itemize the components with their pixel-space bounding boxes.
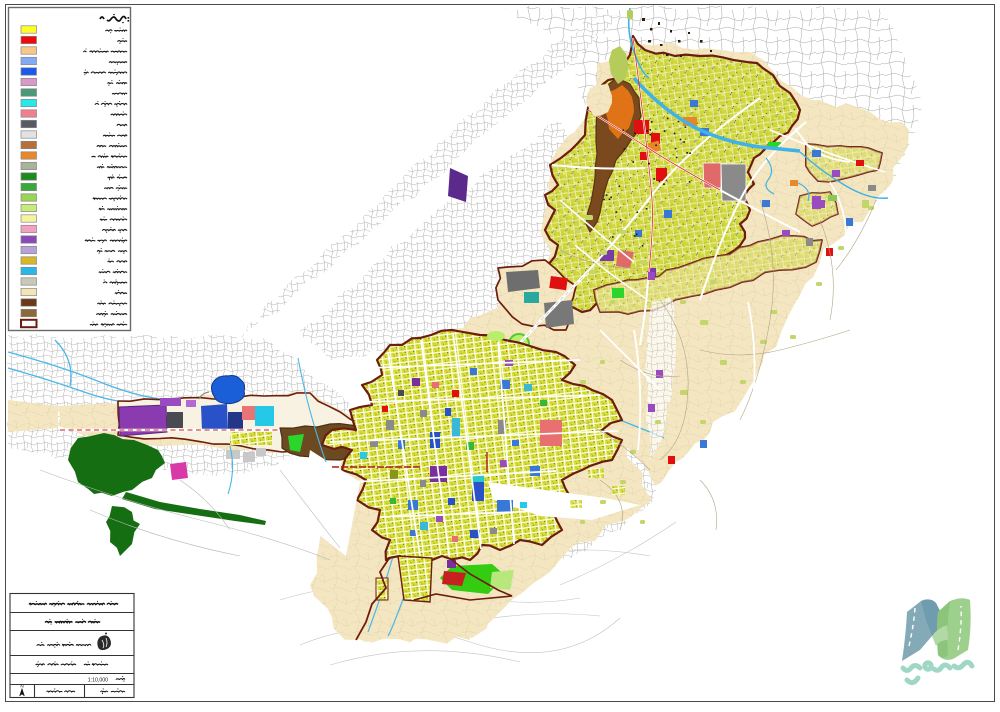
svg-text:1:10,000: 1:10,000 (88, 678, 108, 684)
svg-text:N: N (20, 684, 23, 689)
